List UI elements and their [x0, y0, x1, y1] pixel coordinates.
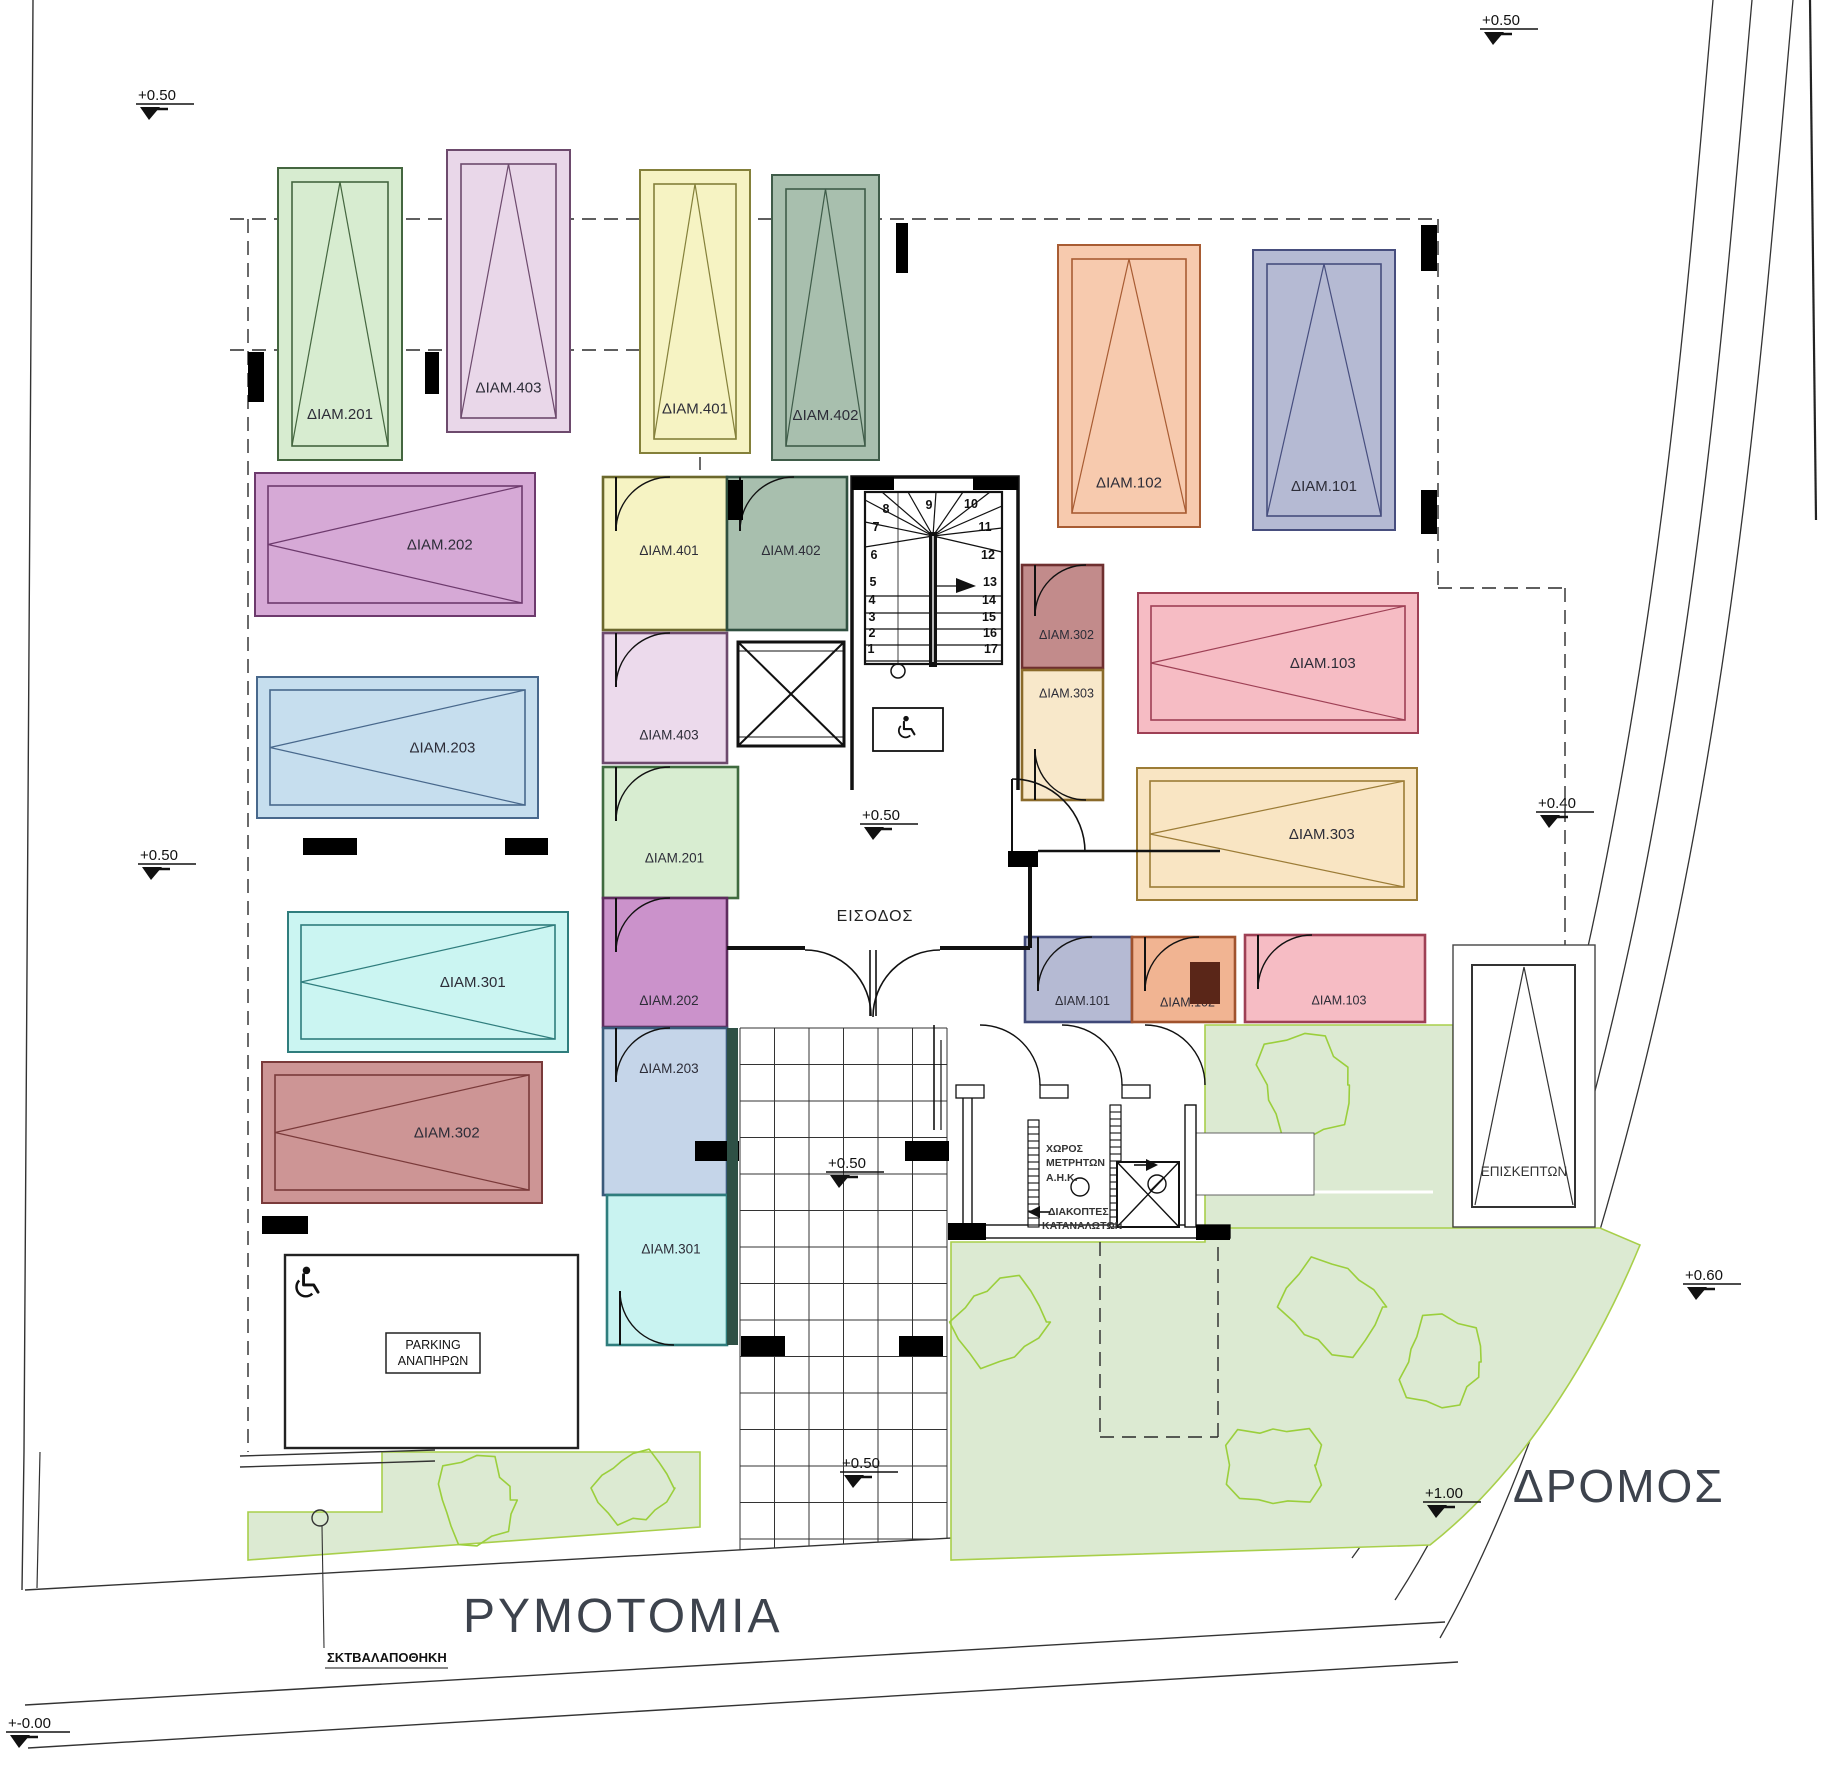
- svg-text:ΜΕΤΡΗΤΩΝ: ΜΕΤΡΗΤΩΝ: [1046, 1157, 1105, 1169]
- disabled-parking-label: PARKING: [405, 1338, 460, 1352]
- level-value: +0.50: [862, 807, 900, 824]
- storage-room-west: ΔΙΑΜ.401: [603, 477, 727, 630]
- road-label: ΔΡΟΜΟΣ: [1513, 1460, 1725, 1512]
- stall-label: ΔΙΑΜ.101: [1291, 478, 1357, 495]
- column: [905, 1141, 949, 1161]
- stair-step-number: 13: [983, 575, 997, 589]
- parking-stall-horizontal: ΔΙΑΜ.203: [257, 677, 538, 818]
- parking-stall-horizontal: ΔΙΑΜ.302: [262, 1062, 542, 1203]
- stair-step-number: 6: [871, 548, 878, 562]
- column: [741, 1336, 785, 1356]
- storage-room-west: ΔΙΑΜ.301: [607, 1195, 727, 1345]
- column: [425, 352, 439, 394]
- room-label: ΔΙΑΜ.301: [641, 1242, 700, 1257]
- level-value: +0.50: [138, 87, 176, 104]
- parking-stall-vertical: ΔΙΑΜ.401: [640, 170, 750, 453]
- stair-step-number: 10: [964, 497, 978, 511]
- room-label: ΔΙΑΜ.302: [1039, 628, 1094, 642]
- column: [1196, 1225, 1230, 1240]
- stair-step-number: 11: [978, 520, 991, 534]
- column: [973, 477, 1018, 490]
- stair-step-number: 4: [869, 593, 876, 607]
- meter-room-label: ΧΩΡΟΣ: [1046, 1143, 1083, 1155]
- storage-room-west: ΔΙΑΜ.402: [727, 477, 847, 630]
- wall-poche: [727, 1028, 738, 1345]
- storage-room-west: ΔΙΑΜ.202: [603, 898, 727, 1027]
- stall-label: ΔΙΑΜ.202: [407, 537, 473, 554]
- stair-core: 1234567891011121314151617: [852, 477, 1018, 790]
- level-value: +-0.00: [8, 1715, 51, 1732]
- level-marker: +0.50: [138, 847, 196, 880]
- storage-room-east: ΔΙΑΜ.302: [1022, 565, 1103, 668]
- site-plan-canvas: ΔΙΑΜ.201ΔΙΑΜ.403ΔΙΑΜ.401ΔΙΑΜ.402ΔΙΑΜ.102…: [0, 0, 1846, 1786]
- stall-label: ΔΙΑΜ.103: [1290, 655, 1356, 672]
- stall-label: ΔΙΑΜ.403: [476, 380, 542, 397]
- column: [248, 352, 264, 402]
- level-marker: +0.40: [1536, 795, 1594, 828]
- level-value: +0.50: [1482, 12, 1520, 29]
- garden-strip-southwest: [248, 1452, 700, 1560]
- parking-stall-vertical: ΔΙΑΜ.402: [772, 175, 879, 460]
- level-marker: +0.50: [1480, 12, 1538, 45]
- stair-step-number: 15: [982, 610, 996, 624]
- level-value: +0.50: [842, 1455, 880, 1472]
- street-label: ΡΥΜΟΤΟΜΙΑ: [463, 1590, 782, 1643]
- room-label: ΔΙΑΜ.401: [639, 543, 698, 558]
- room-label: ΔΙΑΜ.202: [639, 993, 698, 1008]
- floor-plan-drawing: ΔΙΑΜ.201ΔΙΑΜ.403ΔΙΑΜ.401ΔΙΑΜ.402ΔΙΑΜ.102…: [0, 0, 1846, 1786]
- parking-stall-vertical: ΔΙΑΜ.101: [1253, 250, 1395, 530]
- parking-stall-vertical: ΔΙΑΜ.201: [278, 168, 402, 460]
- room-label: ΔΙΑΜ.203: [639, 1061, 698, 1076]
- stair-step-number: 12: [981, 548, 995, 562]
- wall-block: [1190, 962, 1220, 1004]
- svg-text:Α.Η.Κ.: Α.Η.Κ.: [1046, 1172, 1078, 1184]
- stair-step-number: 8: [883, 502, 890, 516]
- stair-step-number: 2: [869, 626, 876, 640]
- room-label: ΔΙΑΜ.103: [1312, 994, 1367, 1008]
- column: [262, 1216, 308, 1234]
- stall-label: ΔΙΑΜ.401: [662, 400, 728, 417]
- level-marker: +0.50: [826, 1155, 884, 1188]
- garbage-store-label: ΣΚΤΒΑΛΑΠΟΘΗΚΗ: [327, 1650, 447, 1665]
- column: [1008, 851, 1038, 867]
- svg-text:ΚΑΤΑΝΑΛΩΤΩΝ: ΚΑΤΑΝΑΛΩΤΩΝ: [1042, 1220, 1122, 1232]
- stall-label: ΕΠΙΣΚΕΠΤΩΝ: [1481, 1164, 1567, 1179]
- level-marker: +0.60: [1683, 1267, 1741, 1300]
- parking-stall-horizontal: ΔΙΑΜ.301: [288, 912, 568, 1052]
- level-value: +1.00: [1425, 1485, 1463, 1502]
- stair-step-number: 9: [926, 498, 933, 512]
- stall-label: ΔΙΑΜ.203: [410, 740, 476, 757]
- column: [303, 838, 357, 855]
- stall-label: ΔΙΑΜ.402: [793, 407, 859, 424]
- column: [896, 223, 908, 273]
- column: [852, 477, 894, 490]
- stall-label: ΔΙΑΜ.303: [1289, 826, 1355, 843]
- level-value: +0.60: [1685, 1267, 1723, 1284]
- room-label: ΔΙΑΜ.101: [1055, 994, 1110, 1008]
- storage-room-south: ΔΙΑΜ.101: [1025, 937, 1132, 1022]
- elevator-shaft: [738, 642, 844, 746]
- stair-step-number: 17: [984, 642, 998, 656]
- level-value: +0.50: [828, 1155, 866, 1172]
- svg-text:ΑΝΑΠΗΡΩΝ: ΑΝΑΠΗΡΩΝ: [398, 1354, 468, 1368]
- parking-stall-vertical: ΔΙΑΜ.403: [447, 150, 570, 432]
- parking-stall-vertical: ΔΙΑΜ.102: [1058, 245, 1200, 527]
- parking-stall-horizontal: ΔΙΑΜ.303: [1137, 768, 1417, 900]
- stair-step-number: 5: [870, 575, 877, 589]
- column: [1421, 225, 1437, 271]
- storage-room-east: ΔΙΑΜ.303: [1022, 670, 1103, 800]
- stair-step-number: 3: [869, 610, 876, 624]
- stair-step-number: 16: [983, 626, 997, 640]
- column: [1421, 490, 1437, 534]
- entrance-label: ΕΙΣΟΔΟΣ: [837, 908, 914, 925]
- level-marker: +0.50: [136, 87, 194, 120]
- parking-stall-horizontal: ΔΙΑΜ.202: [255, 473, 535, 616]
- column: [728, 480, 743, 520]
- level-value: +0.50: [140, 847, 178, 864]
- level-marker: +0.50: [860, 807, 918, 840]
- room-label: ΔΙΑΜ.402: [761, 543, 820, 558]
- stall-label: ΔΙΑΜ.302: [414, 1125, 480, 1142]
- room-label: ΔΙΑΜ.201: [645, 851, 704, 866]
- level-marker: +0.50: [840, 1455, 898, 1488]
- storage-room-west: ΔΙΑΜ.403: [603, 633, 727, 763]
- level-value: +0.40: [1538, 795, 1576, 812]
- column: [948, 1223, 986, 1240]
- column: [505, 838, 548, 855]
- room-label: ΔΙΑΜ.303: [1039, 686, 1094, 700]
- stall-label: ΔΙΑΜ.102: [1096, 475, 1162, 492]
- storage-room-south: ΔΙΑΜ.103: [1245, 935, 1425, 1022]
- stair-step-number: 1: [868, 642, 875, 656]
- stall-label: ΔΙΑΜ.301: [440, 974, 506, 991]
- room-label: ΔΙΑΜ.403: [639, 728, 698, 743]
- switches-label: ΔΙΑΚΟΠΤΕΣ: [1048, 1206, 1109, 1218]
- column: [899, 1336, 943, 1356]
- parking-stall-horizontal: ΔΙΑΜ.103: [1138, 593, 1418, 733]
- stall-label: ΔΙΑΜ.201: [307, 406, 373, 423]
- parking-stall-visitors: ΕΠΙΣΚΕΠΤΩΝ: [1453, 945, 1595, 1227]
- stair-step-number: 7: [873, 520, 880, 534]
- stair-step-number: 14: [982, 593, 996, 607]
- level-marker: +-0.00: [6, 1715, 70, 1748]
- storage-room-west: ΔΙΑΜ.201: [603, 767, 738, 898]
- storage-room-west: ΔΙΑΜ.203: [603, 1028, 727, 1195]
